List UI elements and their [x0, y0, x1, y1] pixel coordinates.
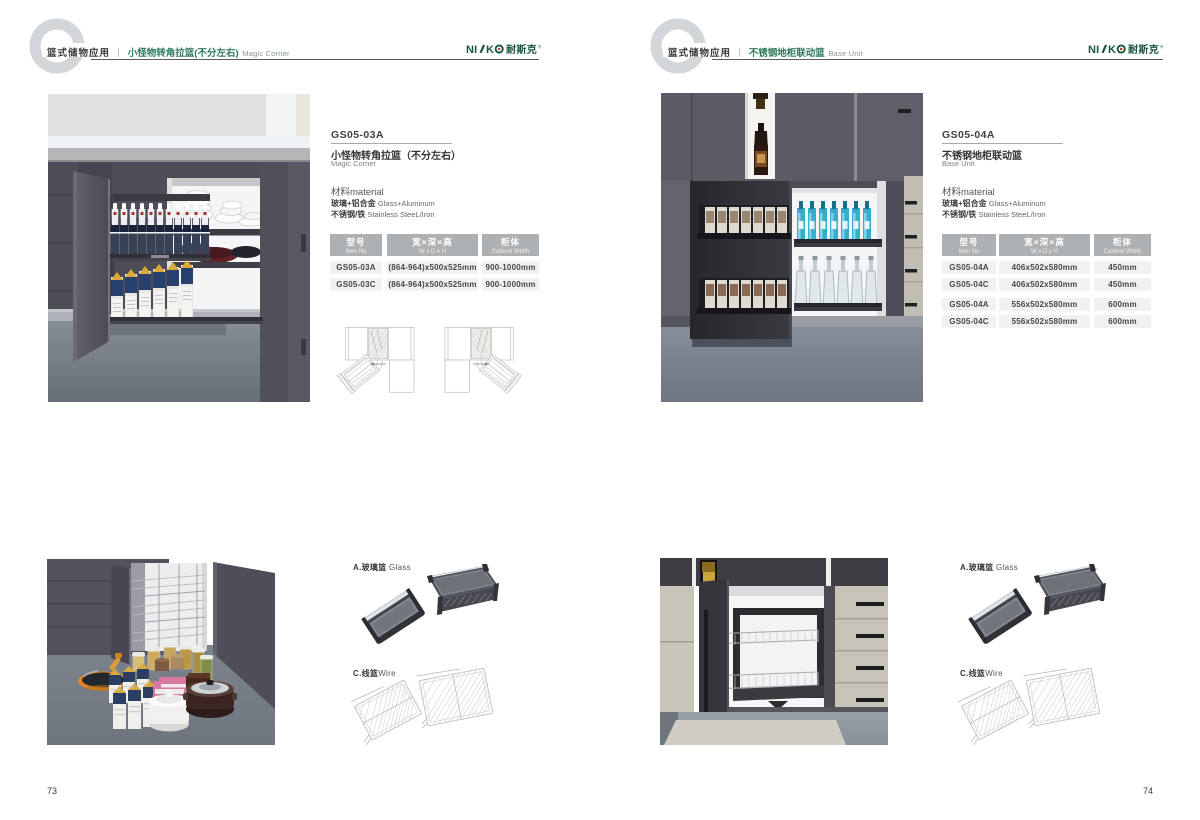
svg-text:®: ® — [538, 44, 542, 50]
svg-text:耐斯克: 耐斯克 — [1128, 44, 1159, 55]
svg-text:NI: NI — [466, 44, 477, 55]
svg-text:NI: NI — [1088, 44, 1099, 55]
svg-text:K: K — [1108, 44, 1116, 55]
svg-text:®: ® — [1160, 44, 1164, 50]
svg-text:K: K — [486, 44, 494, 55]
svg-text:耐斯克: 耐斯克 — [506, 44, 537, 55]
